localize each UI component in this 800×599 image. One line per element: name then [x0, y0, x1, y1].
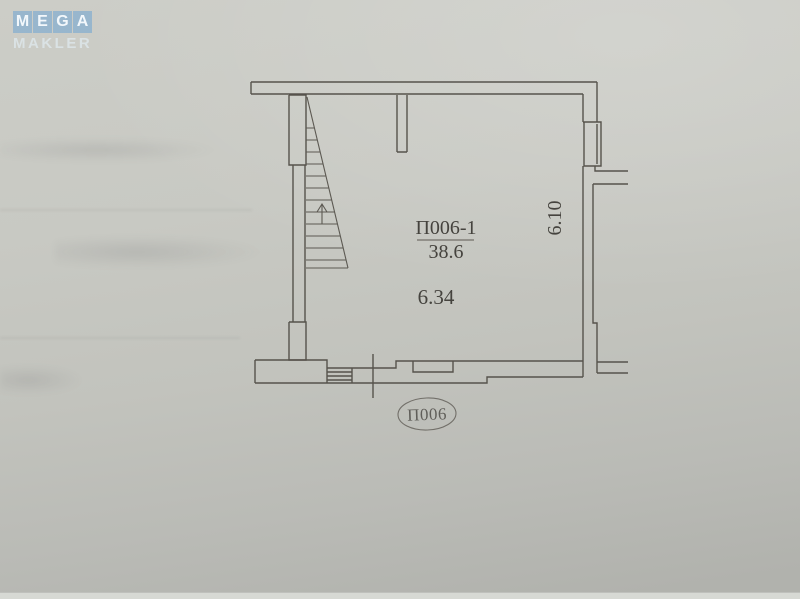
- scanned-floorplan-photo: M E G A MAKLER П006-1 38.6 6.34: [0, 0, 800, 599]
- staircase: [306, 97, 348, 268]
- wall-top: [251, 82, 597, 122]
- floorplan-drawing: П006-1 38.6 6.34 6.10 П006: [0, 0, 800, 599]
- stair-up-arrow-icon: [317, 204, 327, 224]
- wall-left: [289, 95, 306, 360]
- stamp-label: П006: [407, 404, 447, 424]
- room-area: 38.6: [429, 241, 464, 263]
- wall-stub: [397, 95, 407, 152]
- photo-bottom-edge: [0, 592, 800, 599]
- dimension-vertical: 6.10: [544, 201, 566, 236]
- room-stamp: П006: [397, 397, 456, 431]
- room-label: П006-1: [415, 217, 476, 239]
- wall-bottom: [255, 354, 583, 398]
- wall-right: [583, 122, 628, 377]
- dimension-horizontal: 6.34: [418, 285, 455, 309]
